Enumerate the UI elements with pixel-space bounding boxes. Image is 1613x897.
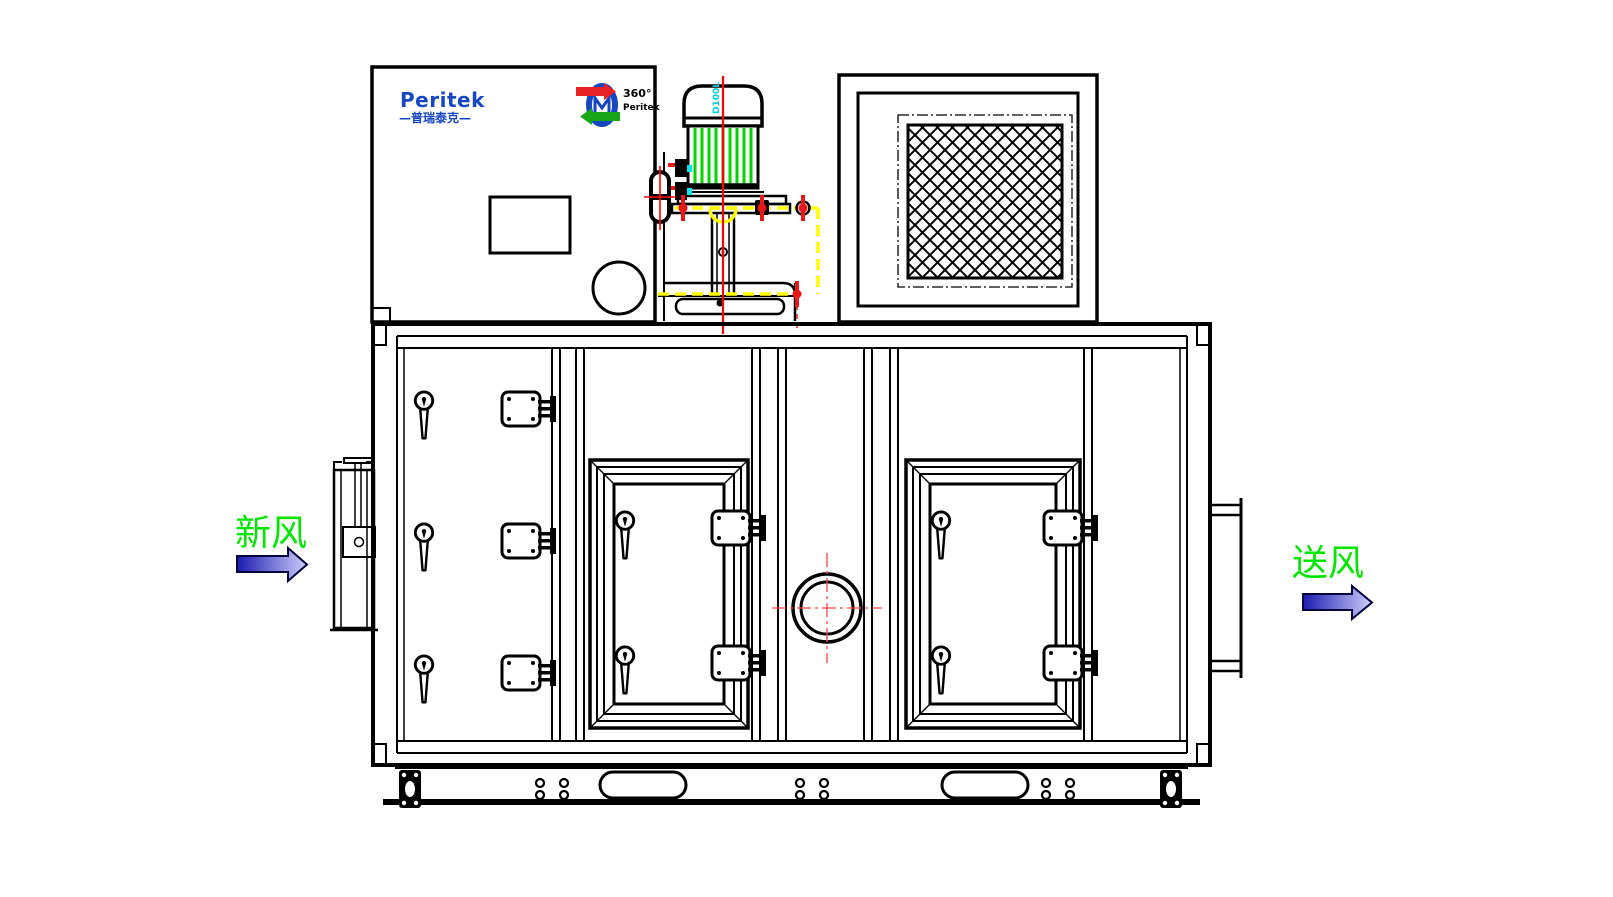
panel-latch-icon: [502, 524, 556, 558]
section-mullions: [552, 348, 1092, 741]
base-frame: [383, 768, 1200, 808]
door-handle-icon: [932, 647, 949, 693]
supply-air-label: 送风: [1292, 543, 1364, 584]
ground-line: [383, 799, 1200, 805]
anchor-bolt-holes: [536, 779, 1074, 799]
round-port: [593, 262, 645, 314]
peritek-logo-subtext: —普瑞泰克—: [399, 110, 471, 125]
peritek-logo-text: Peritek: [400, 88, 485, 112]
fresh-air-label: 新风: [235, 513, 307, 554]
foot-bracket-icon: [399, 770, 421, 808]
door-latch-icon: [712, 511, 766, 545]
right-access-door: [906, 460, 1098, 728]
door-handle-icon: [415, 524, 432, 570]
supply-air-arrow-icon: [1303, 586, 1372, 619]
wheel-brand-label: Peritek: [623, 103, 661, 113]
door-handle-icon: [932, 512, 949, 558]
control-panel-cutout: [490, 197, 570, 253]
wheel-m-icon: [595, 98, 609, 113]
door-latch-icon: [1044, 646, 1098, 680]
door-handle-icon: [415, 392, 432, 438]
drawing-canvas: Peritek —普瑞泰克— 360° Peritek: [0, 0, 1613, 897]
panel-latch-icon: [502, 392, 556, 426]
door-handle-icon: [616, 512, 633, 558]
supply-air-flange: [1210, 498, 1241, 678]
dehumidifier-technical-drawing: Peritek —普瑞泰克— 360° Peritek: [0, 0, 1613, 897]
door-latch-icon: [1044, 511, 1098, 545]
bolt-marker-icon: [758, 195, 767, 221]
door-handle-icon: [616, 647, 633, 693]
mesh-grille: [908, 125, 1062, 278]
left-access-panel: [415, 392, 556, 702]
tension-knob: [644, 166, 676, 230]
motor-model-label: D100L: [712, 82, 722, 114]
drive-motor-assembly: D100L: [644, 76, 818, 334]
wheel-rotation-label: 360°: [623, 87, 651, 100]
bolt-marker-icon: [799, 195, 808, 221]
top-left-box: Peritek —普瑞泰克— 360° Peritek: [372, 67, 661, 322]
top-right-box: [839, 75, 1097, 322]
main-cabinet: [373, 324, 1210, 765]
forklift-slot: [942, 772, 1028, 798]
damper-actuator-box: [343, 527, 375, 557]
inspection-porthole: [772, 553, 882, 663]
panel-latch-icon: [502, 656, 556, 690]
motor-pedestal: [658, 283, 795, 314]
fresh-air-damper: [330, 458, 378, 630]
door-latch-icon: [712, 646, 766, 680]
desiccant-wheel-logo: 360° Peritek: [576, 83, 661, 125]
forklift-slot: [600, 772, 686, 798]
middle-access-door: [590, 460, 766, 728]
damper-handle-bar: [344, 458, 374, 463]
door-handle-icon: [415, 656, 432, 702]
foot-bracket-icon: [1160, 770, 1182, 808]
